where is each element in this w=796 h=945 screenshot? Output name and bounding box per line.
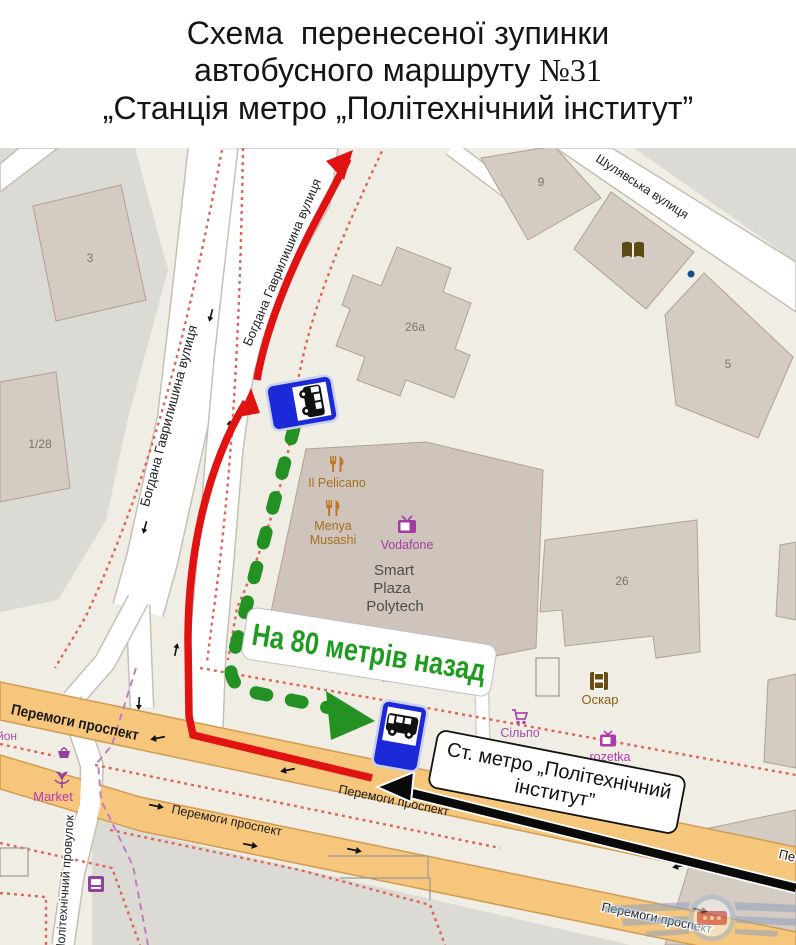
svg-text:5: 5 <box>725 357 732 371</box>
svg-text:Plaza: Plaza <box>373 580 411 597</box>
svg-text:„Станція метро „Політехнічний: „Станція метро „Політехнічний інститут” <box>103 90 693 126</box>
svg-text:Smart: Smart <box>374 562 415 579</box>
svg-text:Vodafone: Vodafone <box>381 538 434 552</box>
svg-text:Polytech: Polytech <box>366 598 424 615</box>
svg-text:Сільпо: Сільпо <box>500 726 539 740</box>
svg-text:автобусного маршруту №31: автобусного маршруту №31 <box>194 52 602 88</box>
svg-text:9: 9 <box>538 175 545 189</box>
svg-text:Menya: Menya <box>314 519 352 533</box>
svg-text:1/28: 1/28 <box>28 437 52 451</box>
svg-text:3: 3 <box>87 251 94 265</box>
svg-text:Il Pelicano: Il Pelicano <box>308 476 366 490</box>
svg-text:26: 26 <box>615 574 629 588</box>
svg-text:йон: йон <box>0 729 17 743</box>
svg-text:Musashi: Musashi <box>310 533 357 547</box>
svg-text:26a: 26a <box>405 320 425 334</box>
svg-text:Оскар: Оскар <box>581 692 618 707</box>
svg-text:Схема перенесеної зупинки: Схема перенесеної зупинки <box>187 15 609 51</box>
svg-text:Market: Market <box>33 789 73 804</box>
